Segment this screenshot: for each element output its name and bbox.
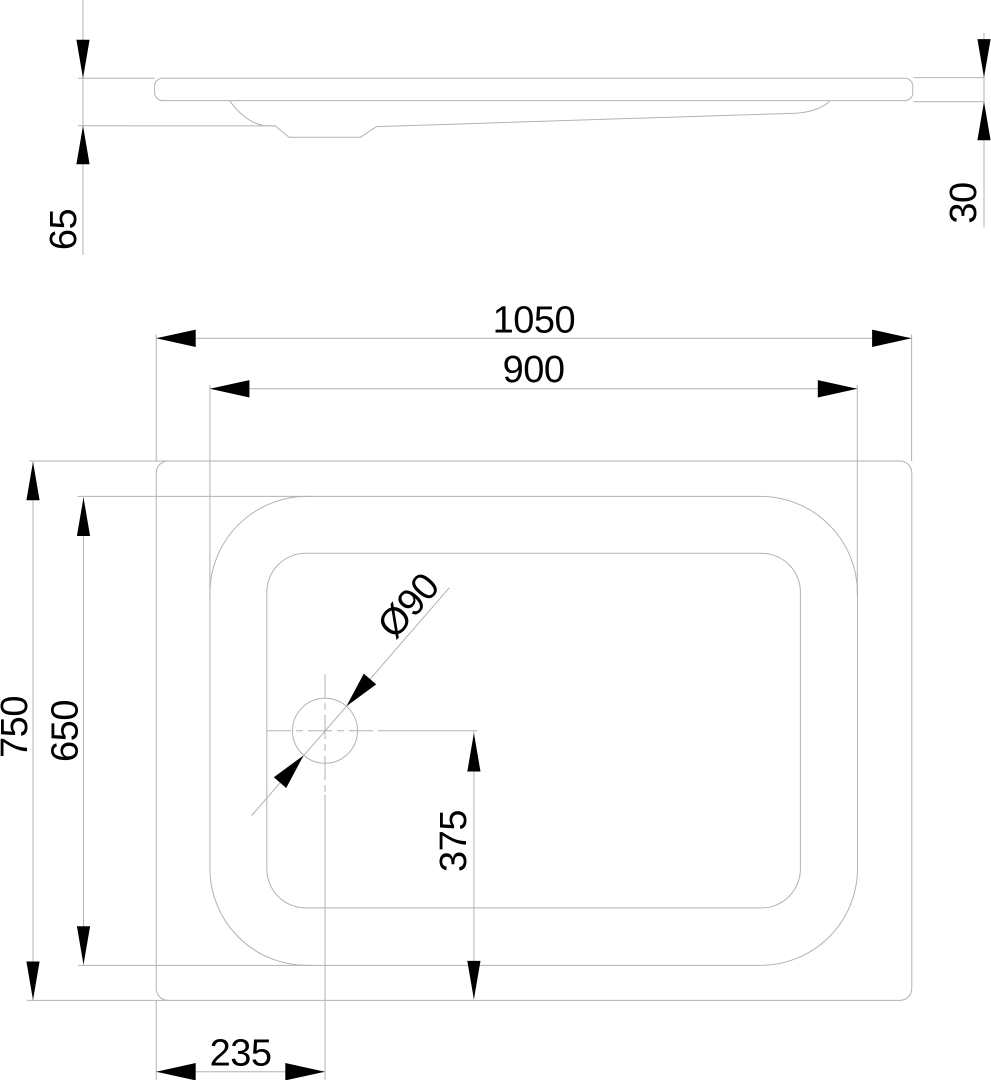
svg-text:375: 375 xyxy=(433,810,475,872)
svg-text:65: 65 xyxy=(43,209,85,250)
svg-text:235: 235 xyxy=(210,1033,272,1075)
svg-text:750: 750 xyxy=(0,696,36,758)
svg-text:900: 900 xyxy=(503,349,565,391)
svg-text:Ø90: Ø90 xyxy=(370,566,448,647)
svg-text:1050: 1050 xyxy=(493,299,576,341)
svg-text:30: 30 xyxy=(943,182,985,223)
svg-text:650: 650 xyxy=(45,700,87,762)
